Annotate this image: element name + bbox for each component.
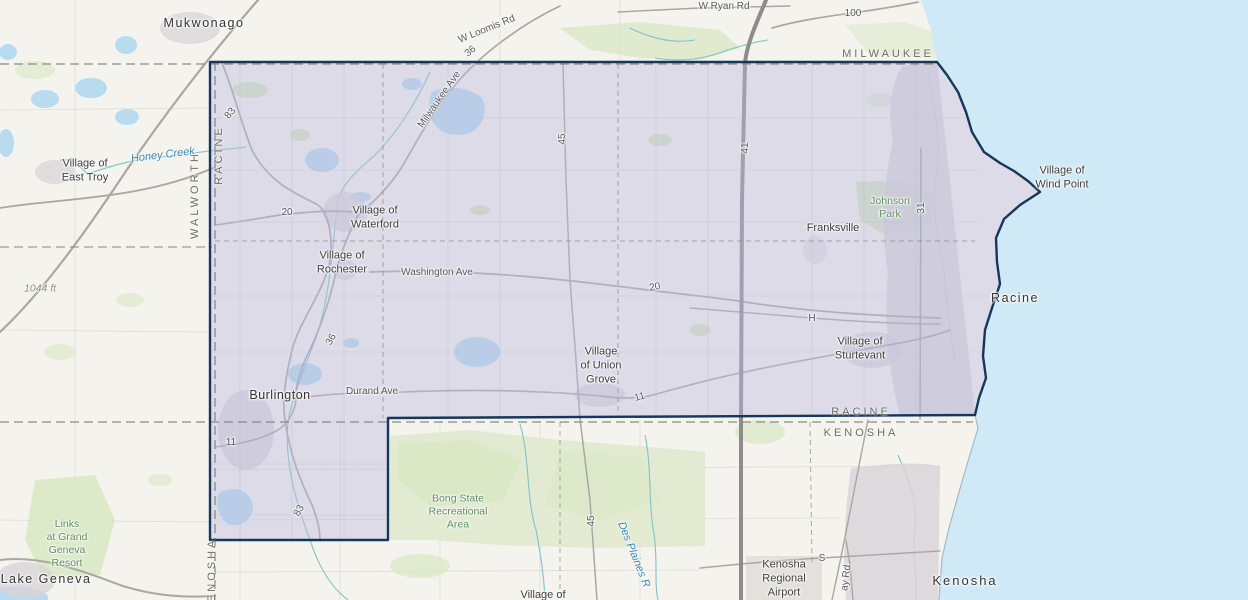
bong-area-green [390,430,705,548]
map-canvas[interactable]: Mukwonago Village of East Troy Village o… [0,0,1248,600]
map-graphics [0,0,1248,600]
